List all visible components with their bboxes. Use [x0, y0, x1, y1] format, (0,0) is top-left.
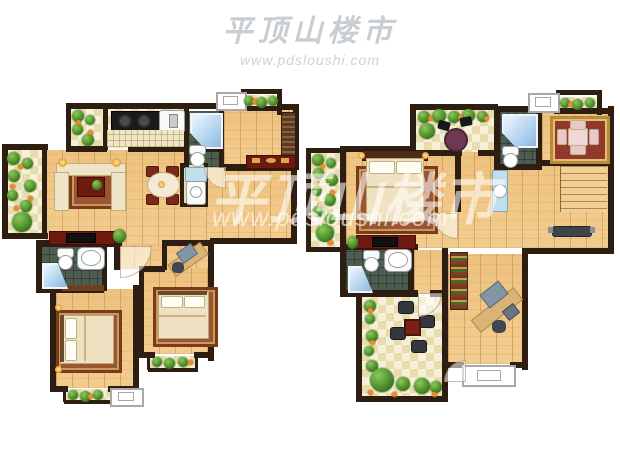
terrace-chair	[419, 315, 435, 328]
flower	[88, 130, 93, 135]
plant	[365, 314, 375, 324]
plant	[364, 346, 374, 356]
bedside-lamp	[55, 304, 62, 311]
faucet	[169, 114, 178, 128]
wall	[410, 104, 416, 152]
desk-chair	[172, 262, 184, 273]
flower	[76, 120, 81, 125]
bench-cap	[590, 227, 595, 233]
flower	[370, 340, 375, 345]
plant	[414, 378, 430, 394]
flower	[568, 102, 573, 107]
table-decor	[158, 181, 165, 188]
flower	[18, 164, 23, 169]
plant	[396, 377, 410, 391]
flower	[392, 392, 397, 397]
tv	[66, 233, 96, 243]
floor-lamp	[58, 158, 67, 167]
bathtub-basin	[81, 250, 101, 266]
flower	[432, 392, 437, 397]
sofa-armchair	[111, 172, 126, 211]
watermark-top: 平顶山楼市 www.pdsloushi.com	[0, 6, 620, 68]
floor-plan-image: 平顶山楼市 www.pdsloushi.com 平顶山楼市 www.pdslou…	[0, 0, 620, 470]
sofa-armchair	[54, 172, 69, 211]
wall	[66, 146, 107, 152]
tea-seat	[570, 145, 586, 155]
plant	[178, 357, 188, 367]
plant	[8, 170, 20, 182]
toilet-bowl	[58, 255, 73, 270]
headboard	[60, 315, 64, 362]
potted-plant	[419, 123, 435, 139]
flower	[484, 116, 489, 121]
flower	[368, 390, 373, 395]
wall	[306, 148, 344, 153]
desk-chair	[492, 320, 506, 333]
flower	[252, 99, 257, 104]
plant	[24, 180, 36, 192]
bay-window-glass	[223, 96, 238, 105]
tea-seat	[570, 120, 586, 130]
plant	[347, 236, 358, 249]
watermark-center-url: www.pdsloushi.com	[212, 204, 449, 233]
washer-door	[190, 186, 202, 198]
wall	[556, 90, 600, 95]
wall	[410, 104, 498, 110]
plant	[113, 229, 126, 243]
headboard	[158, 291, 207, 295]
flower	[428, 116, 433, 121]
tv	[372, 237, 398, 247]
watermark-top-url: www.pdsloushi.com	[0, 52, 620, 68]
plant	[85, 115, 95, 125]
staircase	[560, 166, 607, 212]
floor-lamp	[112, 158, 121, 167]
blanket-fold	[84, 316, 86, 361]
bookshelf	[450, 252, 468, 310]
plant	[20, 200, 32, 212]
plant	[268, 96, 278, 106]
tea-seat	[557, 129, 567, 145]
plant	[164, 358, 175, 369]
flower	[88, 394, 93, 399]
wall	[306, 247, 344, 252]
plant	[93, 390, 103, 400]
wall	[63, 388, 66, 402]
bay-window-glass	[477, 370, 501, 381]
flower	[188, 360, 193, 365]
plant	[72, 124, 83, 135]
toilet-bowl	[190, 152, 205, 167]
plant	[585, 98, 595, 108]
pillow	[184, 296, 205, 308]
round-table	[444, 128, 468, 152]
plant	[7, 190, 18, 201]
bathtub-basin	[388, 252, 408, 268]
terrace-table	[404, 319, 421, 336]
bench	[552, 226, 592, 237]
plant	[7, 152, 20, 165]
toilet-bowl	[503, 153, 518, 168]
plant	[22, 158, 33, 169]
tea-seat	[589, 129, 599, 145]
stove-burner	[137, 114, 151, 128]
table-plant	[92, 180, 102, 190]
tea-table	[568, 128, 588, 146]
hallway	[414, 250, 442, 294]
wall	[66, 103, 218, 109]
wall	[66, 103, 71, 152]
toilet-bowl	[364, 257, 379, 272]
plant	[68, 390, 78, 400]
blanket-fold	[159, 315, 206, 317]
wall	[608, 160, 614, 254]
wall	[42, 148, 47, 238]
bathroom-shelf	[62, 285, 104, 291]
wall	[195, 354, 198, 370]
wall	[241, 89, 281, 94]
wall	[554, 108, 614, 114]
plant	[430, 381, 442, 393]
stove-burner	[118, 114, 132, 128]
flower	[14, 206, 19, 211]
wall	[139, 266, 144, 358]
pillow	[65, 340, 77, 361]
plant	[12, 212, 32, 232]
plant	[572, 99, 583, 110]
plant	[82, 134, 94, 146]
flower	[10, 184, 15, 189]
wall	[148, 368, 198, 372]
pillow	[65, 318, 77, 339]
wall	[356, 295, 362, 400]
plant	[152, 357, 162, 367]
plant	[256, 97, 267, 108]
wall	[522, 248, 612, 254]
flower	[328, 240, 333, 245]
kitchen-counter	[107, 130, 184, 147]
plant	[370, 368, 394, 392]
wall	[147, 354, 150, 370]
watermark-top-title: 平顶山楼市	[223, 15, 398, 48]
bench-cap	[548, 227, 553, 233]
flower	[368, 308, 373, 313]
pillow	[161, 296, 183, 308]
wall	[36, 240, 42, 292]
terrace-chair	[398, 301, 414, 314]
wall	[522, 248, 528, 370]
flower	[28, 196, 33, 201]
wall	[180, 163, 184, 207]
bedside-lamp	[55, 366, 62, 373]
wall	[210, 238, 297, 244]
bay-window-glass	[535, 97, 551, 107]
bay-window-glass	[118, 392, 134, 401]
terrace-chair	[411, 340, 427, 353]
